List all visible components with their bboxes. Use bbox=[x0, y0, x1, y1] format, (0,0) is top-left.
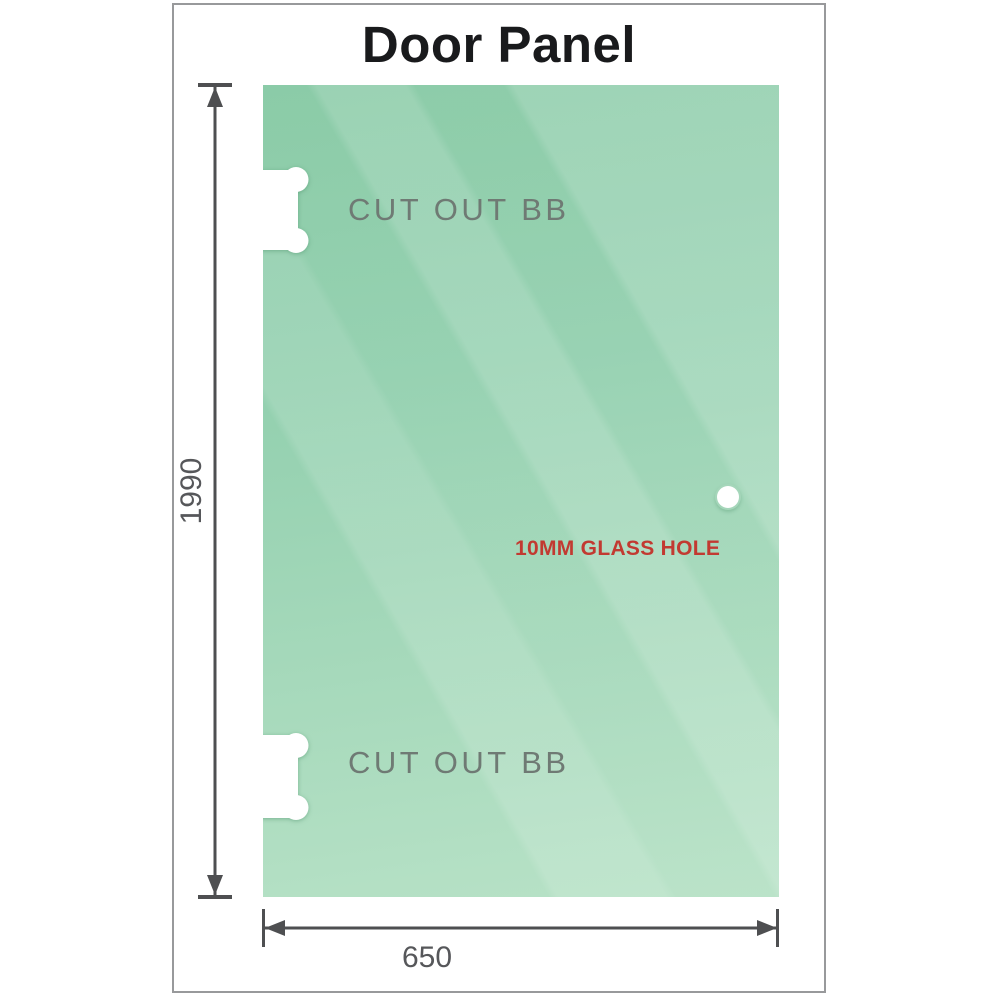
glass-hole-label: 10MM GLASS HOLE bbox=[515, 537, 720, 561]
cutout-bottom bbox=[263, 733, 309, 820]
width-dim-right-tick bbox=[776, 909, 779, 947]
width-dim-line bbox=[263, 927, 778, 930]
cutout-top-upper-lobe bbox=[284, 167, 309, 192]
height-dim-down-arrowhead bbox=[207, 875, 223, 895]
width-dim-left-arrowhead bbox=[265, 920, 285, 936]
drawing-canvas: Door Panel 1990 650 bbox=[0, 0, 1000, 1000]
height-dim-up-arrowhead bbox=[207, 87, 223, 107]
drawing-page: Door Panel 1990 650 bbox=[172, 3, 826, 993]
cutout-top bbox=[263, 167, 309, 253]
height-dimension-value: 1990 bbox=[177, 431, 207, 551]
cutout-bottom-label: CUT OUT BB bbox=[348, 745, 570, 781]
cutout-bottom-upper-lobe bbox=[284, 733, 309, 758]
width-dim-left-tick bbox=[262, 909, 265, 947]
cutout-top-lower-lobe bbox=[284, 228, 309, 253]
glass-hole bbox=[715, 484, 741, 510]
width-dim-right-arrowhead bbox=[757, 920, 777, 936]
glass-panel: CUT OUT BB CUT OUT BB 10MM GLASS HOLE bbox=[263, 85, 779, 897]
page-title: Door Panel bbox=[174, 15, 824, 74]
height-dim-bottom-tick bbox=[198, 895, 232, 899]
height-dim-top-tick bbox=[198, 83, 232, 87]
width-dimension-value: 650 bbox=[367, 941, 487, 975]
height-dim-line bbox=[214, 85, 217, 897]
cutout-top-label: CUT OUT BB bbox=[348, 192, 570, 228]
cutout-bottom-lower-lobe bbox=[284, 795, 309, 820]
width-dimension-arrow bbox=[262, 909, 779, 947]
